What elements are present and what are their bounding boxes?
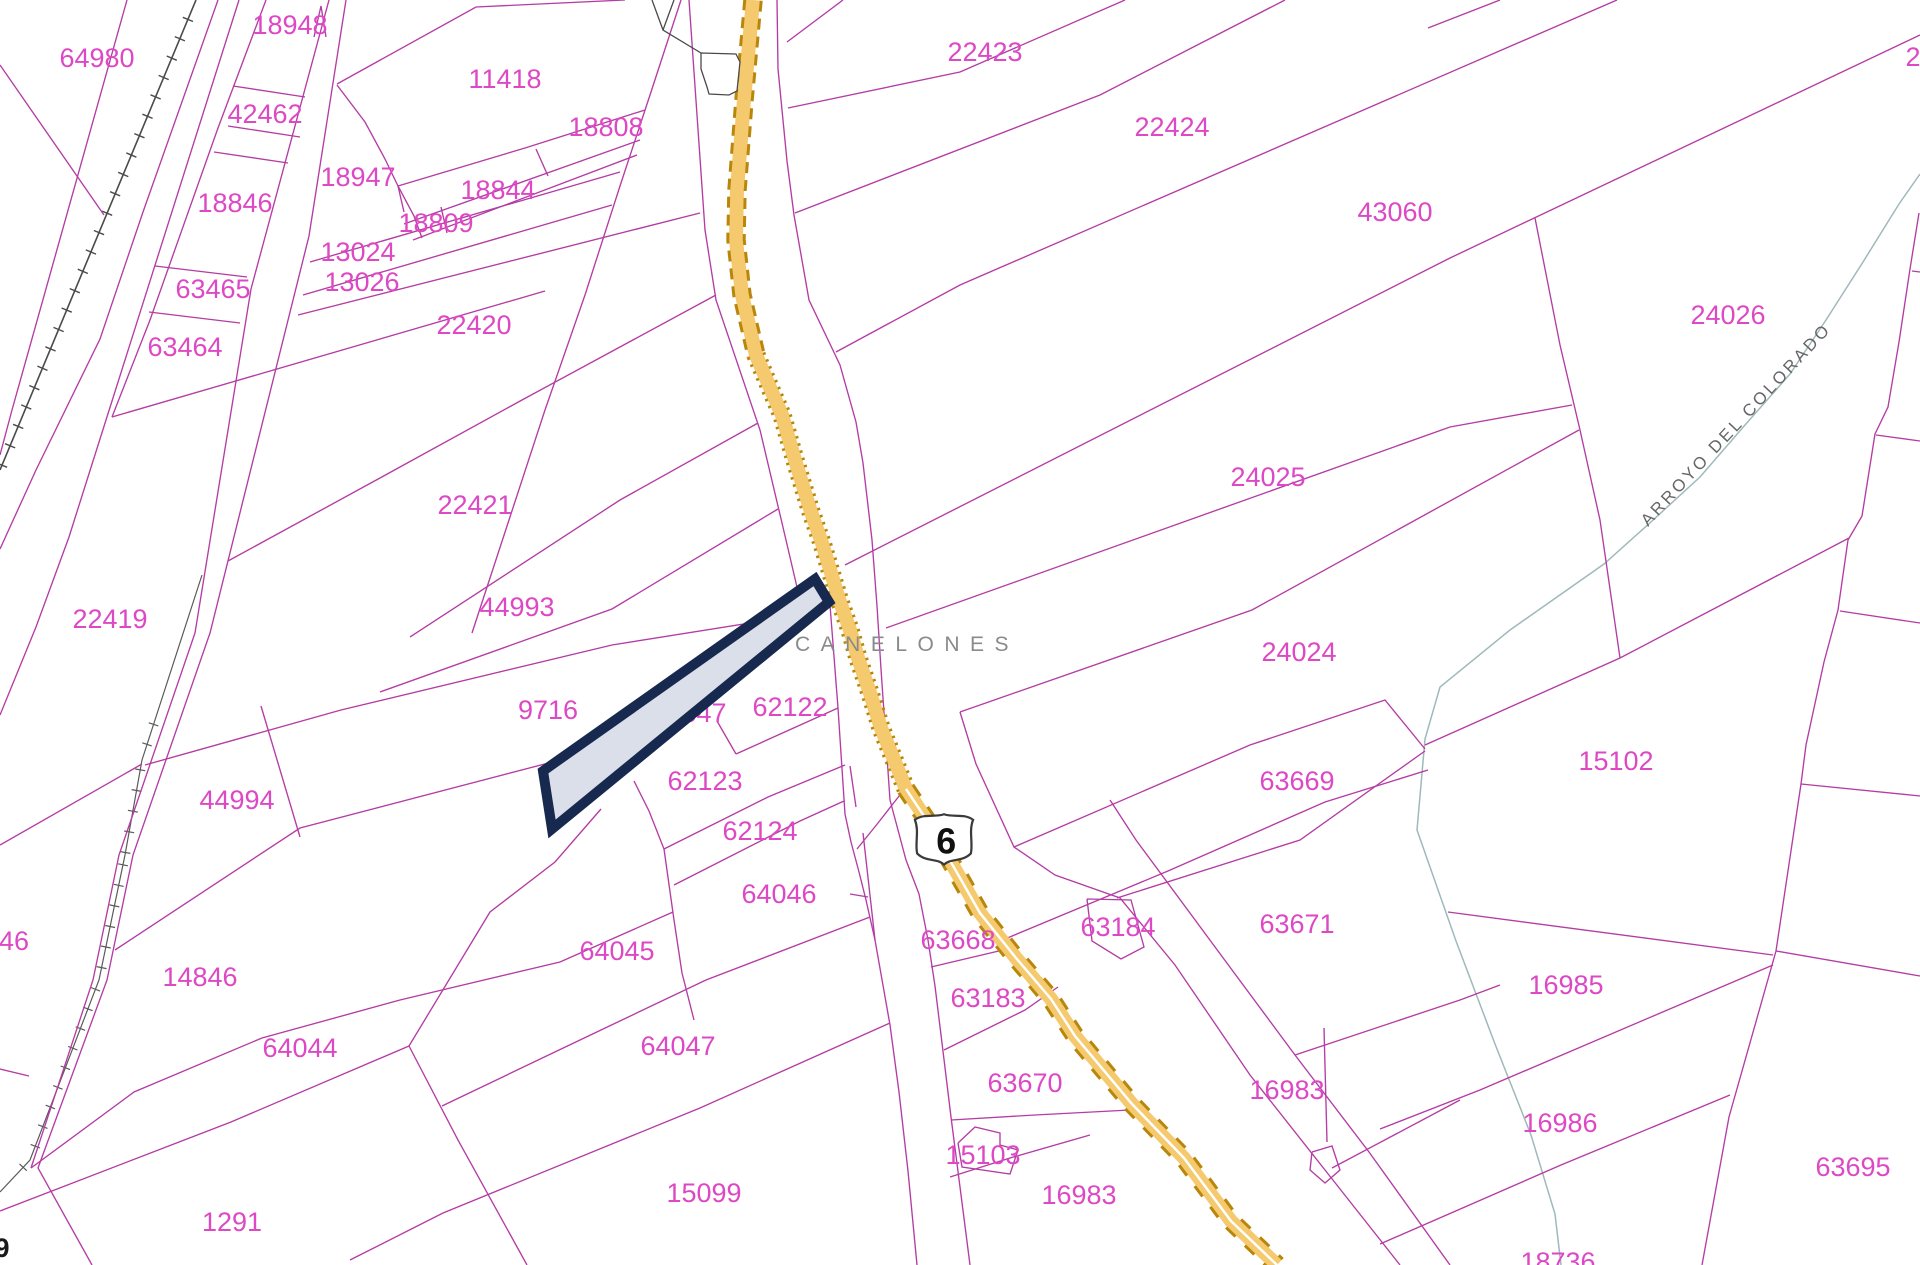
svg-text:16986: 16986 — [1522, 1108, 1597, 1138]
svg-text:22420: 22420 — [436, 310, 511, 340]
svg-text:11418: 11418 — [468, 64, 541, 94]
svg-text:63669: 63669 — [1259, 766, 1334, 796]
svg-text:62124: 62124 — [722, 816, 797, 846]
svg-text:42462: 42462 — [227, 99, 302, 129]
svg-text:18809: 18809 — [398, 208, 473, 238]
svg-text:2: 2 — [1905, 42, 1920, 72]
svg-text:18808: 18808 — [568, 112, 643, 142]
svg-text:64046: 64046 — [741, 879, 816, 909]
svg-text:43060: 43060 — [1357, 197, 1432, 227]
svg-text:63465: 63465 — [175, 274, 250, 304]
svg-text:63668: 63668 — [920, 925, 995, 955]
svg-text:13024: 13024 — [320, 237, 395, 267]
svg-text:18846: 18846 — [197, 188, 272, 218]
svg-text:44993: 44993 — [479, 592, 554, 622]
svg-text:24025: 24025 — [1230, 462, 1305, 492]
svg-text:64044: 64044 — [262, 1033, 337, 1063]
svg-text:9716: 9716 — [518, 695, 578, 725]
svg-text:1291: 1291 — [202, 1207, 262, 1237]
svg-text:22424: 22424 — [1134, 112, 1209, 142]
svg-text:22419: 22419 — [72, 604, 147, 634]
svg-text:63183: 63183 — [950, 983, 1025, 1013]
svg-text:13026: 13026 — [324, 267, 399, 297]
svg-text:64047: 64047 — [640, 1031, 715, 1061]
svg-text:CANELONES: CANELONES — [795, 633, 1019, 656]
svg-text:15102: 15102 — [1578, 746, 1653, 776]
svg-text:63671: 63671 — [1259, 909, 1334, 939]
svg-text:16985: 16985 — [1528, 970, 1603, 1000]
svg-text:18736: 18736 — [1520, 1247, 1595, 1265]
svg-text:63464: 63464 — [147, 332, 222, 362]
svg-text:46: 46 — [0, 926, 29, 956]
svg-text:63184: 63184 — [1080, 912, 1155, 942]
svg-text:15103: 15103 — [945, 1140, 1020, 1170]
svg-text:22421: 22421 — [437, 490, 512, 520]
svg-text:18844: 18844 — [460, 175, 535, 205]
svg-text:18947: 18947 — [320, 162, 395, 192]
svg-text:63695: 63695 — [1815, 1152, 1890, 1182]
svg-text:62123: 62123 — [667, 766, 742, 796]
svg-text:64045: 64045 — [579, 936, 654, 966]
svg-text:6: 6 — [936, 821, 956, 861]
svg-text:64980: 64980 — [59, 43, 134, 73]
svg-text:44994: 44994 — [199, 785, 274, 815]
svg-text:16983: 16983 — [1249, 1075, 1324, 1105]
svg-text:18948: 18948 — [252, 10, 327, 40]
svg-text:63670: 63670 — [987, 1068, 1062, 1098]
svg-text:22423: 22423 — [947, 37, 1022, 67]
svg-text:24024: 24024 — [1261, 637, 1336, 667]
svg-text:62122: 62122 — [752, 692, 827, 722]
svg-text:24026: 24026 — [1690, 300, 1765, 330]
svg-text:15099: 15099 — [666, 1178, 741, 1208]
svg-text:14846: 14846 — [162, 962, 237, 992]
svg-text:16983: 16983 — [1041, 1180, 1116, 1210]
svg-text:9: 9 — [0, 1233, 10, 1263]
